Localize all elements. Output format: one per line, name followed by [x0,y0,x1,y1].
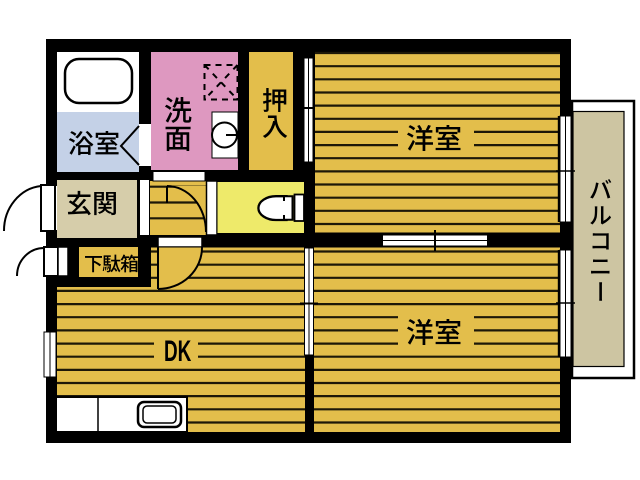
svg-text:DK: DK [164,335,191,369]
